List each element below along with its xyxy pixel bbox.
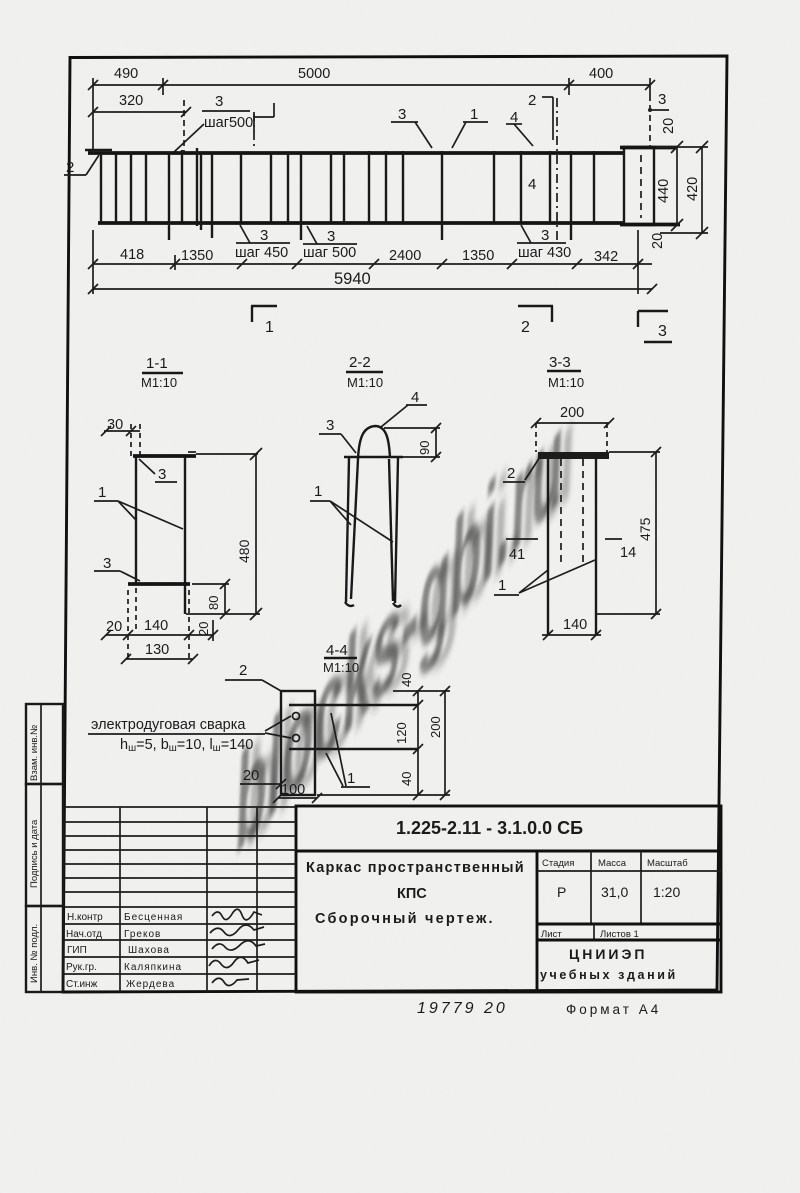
svg-text:2: 2 [528,92,536,109]
svg-text:hш=5, bш=10, lш=140: hш=5, bш=10, lш=140 [120,737,253,754]
svg-text:19779 20: 19779 20 [417,1000,508,1017]
svg-text:418: 418 [120,247,144,263]
svg-text:80: 80 [206,596,221,610]
svg-text:М1:10: М1:10 [347,375,383,390]
svg-text:М1:10: М1:10 [141,375,177,390]
svg-text:учебных зданий: учебных зданий [540,968,678,982]
svg-text:1: 1 [470,106,478,123]
svg-text:4: 4 [411,389,419,406]
svg-text:342: 342 [594,249,618,265]
svg-text:ЦНИИЭП: ЦНИИЭП [569,946,647,962]
svg-text:3: 3 [158,466,166,483]
svg-text:Н.контр: Н.контр [67,912,103,923]
svg-text:20: 20 [243,768,259,784]
svg-text:20: 20 [196,622,211,636]
svg-text:1:20: 1:20 [653,884,680,900]
svg-text:3: 3 [326,417,334,434]
svg-text:320: 320 [119,93,143,109]
svg-text:2: 2 [239,662,247,679]
svg-text:41: 41 [509,547,525,563]
svg-text:475: 475 [637,517,653,541]
svg-text:40: 40 [399,673,414,687]
svg-text:4: 4 [528,176,536,193]
svg-text:1: 1 [314,483,322,500]
svg-text:480: 480 [236,539,252,563]
svg-text:ГИП: ГИП [67,945,87,956]
svg-text:2: 2 [507,465,515,482]
svg-text:М1:10: М1:10 [323,660,359,675]
svg-text:Шахова: Шахова [128,945,170,956]
svg-text:Каляпкина: Каляпкина [124,962,182,973]
svg-text:М1:10: М1:10 [548,375,584,390]
svg-text:КПС: КПС [397,886,427,902]
svg-text:3: 3 [398,106,406,123]
svg-text:130: 130 [145,642,169,658]
svg-text:440: 440 [656,179,672,203]
svg-text:шаг 500: шаг 500 [303,245,356,261]
svg-text:шаг500: шаг500 [204,115,253,131]
svg-text:Нач.отд: Нач.отд [66,929,102,940]
svg-text:Бесценная: Бесценная [124,912,183,923]
svg-text:3: 3 [215,93,223,110]
svg-text:2400: 2400 [389,248,421,264]
svg-text:140: 140 [563,617,587,633]
svg-text:Рук.гр.: Рук.гр. [66,962,97,973]
svg-text:200: 200 [560,405,584,421]
svg-text:Взам. инв.№: Взам. инв.№ [29,725,40,781]
svg-text:2: 2 [521,319,530,336]
svg-text:шаг 430: шаг 430 [518,245,571,261]
svg-text:3: 3 [541,227,549,244]
svg-text:20: 20 [650,233,666,249]
svg-text:Листов 1: Листов 1 [600,929,639,940]
svg-text:1: 1 [265,319,274,336]
svg-text:140: 140 [144,618,168,634]
svg-text:3: 3 [658,91,666,108]
svg-text:электродуговая сварка: электродуговая сварка [91,717,246,733]
svg-text:3: 3 [658,323,667,340]
svg-text:Греков: Греков [124,929,161,940]
svg-text:Подпись и дата: Подпись и дата [29,819,40,888]
svg-text:20: 20 [106,619,122,635]
svg-text:шаг 450: шаг 450 [235,245,288,261]
svg-text:90: 90 [417,441,432,455]
svg-text:40: 40 [399,772,414,786]
svg-text:Масштаб: Масштаб [647,858,688,869]
svg-text:1: 1 [498,577,506,594]
svg-text:5940: 5940 [334,270,371,288]
svg-text:1350: 1350 [462,248,494,264]
svg-text:100: 100 [281,782,305,798]
svg-text:Стадия: Стадия [542,858,574,869]
svg-text:Каркас пространственный: Каркас пространственный [306,860,525,876]
svg-text:Лист: Лист [541,929,562,940]
svg-text:3-3: 3-3 [549,354,571,371]
svg-text:Формат А4: Формат А4 [566,1002,661,1017]
svg-text:4-4: 4-4 [326,642,348,659]
svg-text:400: 400 [589,66,613,82]
svg-text:Масса: Масса [598,858,627,869]
svg-text:Инв. № подл.: Инв. № подл. [29,924,40,983]
svg-text:1350: 1350 [181,248,213,264]
svg-text:1-1: 1-1 [146,355,168,372]
svg-text:1.225-2.11 - 3.1.0.0 СБ: 1.225-2.11 - 3.1.0.0 СБ [396,818,583,838]
svg-text:Сборочный чертеж.: Сборочный чертеж. [315,911,495,927]
svg-text:Р: Р [557,884,566,900]
svg-text:14: 14 [620,545,636,561]
svg-text:420: 420 [685,177,701,201]
svg-text:1: 1 [347,770,355,787]
svg-text:200: 200 [428,716,443,738]
svg-text:31,0: 31,0 [601,884,628,900]
svg-text:3: 3 [327,228,335,245]
svg-text:2: 2 [66,159,74,176]
svg-text:Ст.инж: Ст.инж [66,979,98,990]
svg-text:3: 3 [260,227,268,244]
svg-text:Жердева: Жердева [126,979,175,990]
svg-text:1: 1 [98,484,106,501]
svg-text:120: 120 [394,722,409,744]
svg-text:2-2: 2-2 [349,354,371,371]
svg-text:5000: 5000 [298,66,330,82]
svg-text:490: 490 [114,66,138,82]
svg-text:3: 3 [103,555,111,572]
svg-text:20: 20 [661,118,677,134]
